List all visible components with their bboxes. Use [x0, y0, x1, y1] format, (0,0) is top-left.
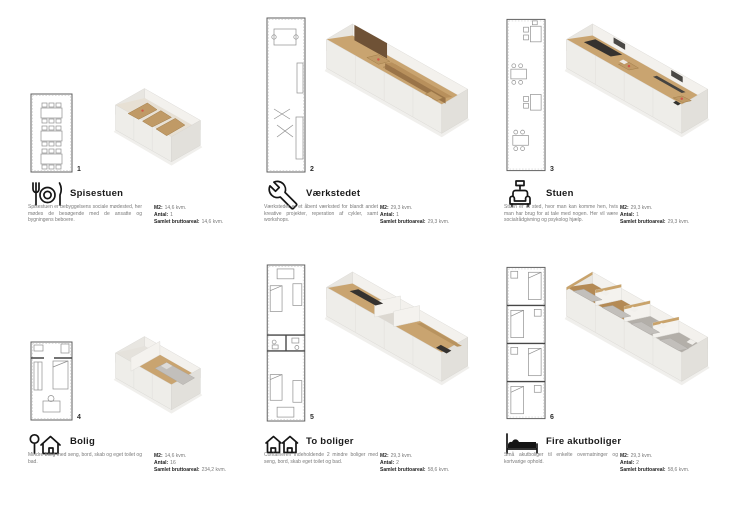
- stat-areal: Samlet bruttoareal:234,2 kvm.: [154, 467, 250, 474]
- stat-areal: Samlet bruttoareal:14,6 kvm.: [154, 219, 250, 226]
- axon-view: [316, 262, 484, 422]
- floor-plan: [30, 93, 73, 173]
- plan-number: 2: [310, 166, 314, 173]
- section-title: Fire akutboliger: [546, 436, 621, 447]
- stat-m2: M2:14,6 kvm.: [154, 453, 250, 460]
- section-title: Bolig: [70, 436, 95, 447]
- section-title: Værkstedet: [306, 188, 360, 199]
- stat-areal: Samlet bruttoareal:58,6 kvm.: [380, 467, 476, 474]
- section-title: Spisestuen: [70, 188, 123, 199]
- axon-view: [104, 328, 210, 424]
- stat-areal: Samlet bruttoareal:58,6 kvm.: [620, 467, 716, 474]
- section-fire-akutboliger: 6: [496, 256, 730, 506]
- plan-number: 3: [550, 166, 554, 173]
- section-description: Spisestuen er bebyggelsens sociale mødes…: [28, 204, 142, 224]
- stat-areal: Samlet bruttoareal:29,3 kvm.: [620, 219, 716, 226]
- stat-m2: M2:29,3 kvm.: [380, 453, 476, 460]
- section-description: Stuen er et sted, hvor man kan komme hen…: [504, 204, 618, 224]
- section-vaerkstedet: 2 Værkstedet Værkstedet er et åbent værk…: [256, 8, 490, 258]
- axon-view: [316, 14, 484, 174]
- floor-plan: [506, 16, 546, 174]
- axon-view: [556, 14, 724, 174]
- stats-block: M2:14,6 kvm. Antal:16 Samlet bruttoareal…: [154, 453, 250, 474]
- stat-antal: Antal:1: [620, 212, 716, 219]
- floor-plan: [506, 264, 546, 422]
- axon-view: [556, 262, 724, 422]
- section-spisestuen: 1 Spisestuen Spisestuen er bebyggelsens …: [20, 8, 254, 258]
- plan-number: 5: [310, 414, 314, 421]
- stat-antal: Antal:1: [154, 212, 250, 219]
- section-description: Mindre bolig med seng, bord, skab og ege…: [28, 452, 142, 465]
- section-description: Værkstedet er et åbent værksted for blan…: [264, 204, 378, 224]
- stat-m2: M2:29,3 kvm.: [620, 453, 716, 460]
- stats-block: M2:14,6 kvm. Antal:1 Samlet bruttoareal:…: [154, 205, 250, 226]
- axon-view: [104, 80, 210, 176]
- stats-block: M2:29,3 kvm. Antal:1 Samlet bruttoareal:…: [620, 205, 716, 226]
- floor-plan: [266, 264, 306, 422]
- section-title: Stuen: [546, 188, 574, 199]
- stat-antal: Antal:2: [620, 460, 716, 467]
- stat-antal: Antal:1: [380, 212, 476, 219]
- stat-m2: M2:14,6 kvm.: [154, 205, 250, 212]
- stat-m2: M2:29,3 kvm.: [620, 205, 716, 212]
- stat-antal: Antal:2: [380, 460, 476, 467]
- plan-number: 4: [77, 414, 81, 421]
- stats-block: M2:29,3 kvm. Antal:2 Samlet bruttoareal:…: [380, 453, 476, 474]
- stat-antal: Antal:16: [154, 460, 250, 467]
- section-bolig: 4 Bolig Mindre bolig med seng, bord, ska…: [20, 256, 254, 506]
- stat-areal: Samlet bruttoareal:29,3 kvm.: [380, 219, 476, 226]
- section-stuen: 3 Stuen Stuen er et sted: [496, 8, 730, 258]
- section-description: Små akutboliger til enkelte overnatninge…: [504, 452, 618, 465]
- floor-plan: [30, 341, 73, 421]
- plan-number: 1: [77, 166, 81, 173]
- stats-block: M2:29,3 kvm. Antal:1 Samlet bruttoareal:…: [380, 205, 476, 226]
- section-to-boliger: 5 To boliger Containeren indeholdende: [256, 256, 490, 506]
- floor-plan: [266, 16, 306, 174]
- section-description: Containeren indeholdende 2 mindre bolige…: [264, 452, 378, 465]
- plan-number: 6: [550, 414, 554, 421]
- stat-m2: M2:29,3 kvm.: [380, 205, 476, 212]
- stats-block: M2:29,3 kvm. Antal:2 Samlet bruttoareal:…: [620, 453, 716, 474]
- section-title: To boliger: [306, 436, 354, 447]
